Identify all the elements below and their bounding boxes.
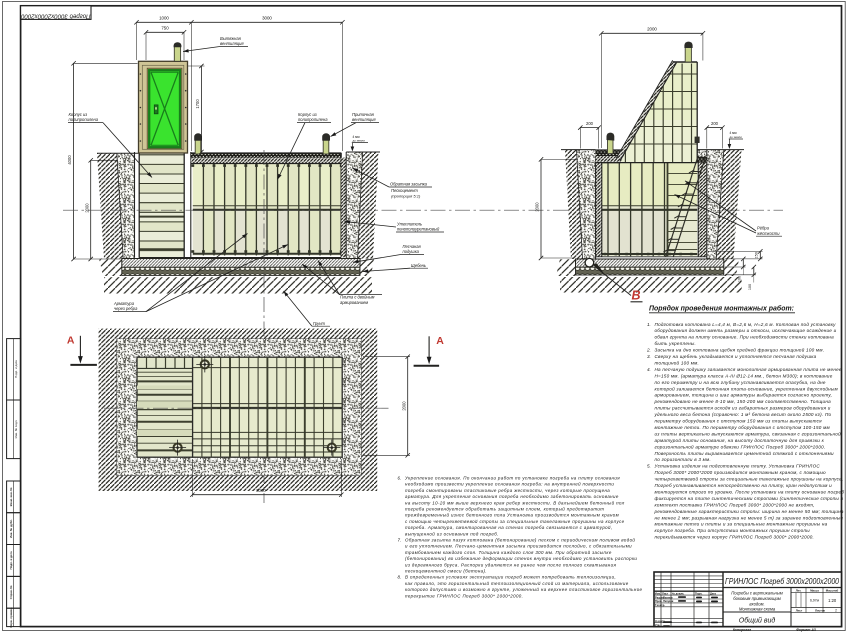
svg-text:Пескоцемент: Пескоцемент [391,188,418,193]
svg-text:быть укреплены.: быть укреплены. [655,341,697,346]
svg-text:толщиной 100 мм.: толщиной 100 мм. [655,360,700,366]
svg-text:полипропилена: полипропилена [69,117,99,122]
svg-text:армированием, толщина и шаг ар: армированием, толщина и шаг арматуры выб… [655,393,833,398]
svg-text:рекомендованные характеристики: рекомендованные характеристики стропы: ш… [654,509,844,514]
svg-text:ГРИНЛОС Погреб 3000х2000х2000: ГРИНЛОС Погреб 3000х2000х2000 [725,577,839,586]
svg-text:150: 150 [754,252,758,258]
svg-text:арматурой плиты основания, на: арматурой плиты основания, на высоту дос… [655,437,825,443]
svg-text:3000: 3000 [262,16,272,21]
svg-text:из плиты вертикально выпускают: из плиты вертикально выпускаются арматур… [655,430,842,436]
svg-text:периметру оборудования с отсту: периметру оборудования с отступом 150 мм… [655,419,823,424]
svg-text:(пропорция 5:1): (пропорция 5:1) [391,193,421,198]
svg-text:из деревянного бруса. Распорки: из деревянного бруса. Распорки удаляются… [405,562,616,567]
svg-text:и его уплотнением. Песчано-цем: и его уплотнением. Песчано-цементная зас… [405,543,632,549]
svg-text:100: 100 [748,284,752,290]
svg-text:Общий вид: Общий вид [739,617,776,625]
svg-text:полипропилена: полипропилена [298,117,328,122]
svg-text:по горизонтали в 3 мм.: по горизонтали в 3 мм. [655,457,711,462]
svg-text:2000: 2000 [401,401,406,411]
svg-text:2: 2 [835,609,837,613]
svg-text:которого допустимо и возможно: которого допустимо и возможно в грунте, … [405,586,643,592]
svg-text:Утеплитель: Утеплитель [397,221,422,226]
svg-text:5.: 5. [647,464,651,469]
svg-text:Листов: Листов [815,609,825,613]
svg-text:Сверху на щебень укладывается: Сверху на щебень укладывается и уплотняе… [655,354,817,359]
svg-text:которой заливается бетонная пл: которой заливается бетонная плита-основа… [655,385,839,391]
svg-text:пескоцементной смеси (бетона).: пескоцементной смеси (бетона). [405,568,487,574]
svg-text:Погребы с вертикальным: Погребы с вертикальным [731,591,783,596]
svg-text:Утв.: Утв. [655,623,660,627]
svg-text:4.: 4. [647,367,651,372]
svg-text:Т.контр.: Т.контр. [655,603,665,607]
svg-text:четырехветвевой стропы за спец: четырехветвевой стропы за специальные та… [655,476,844,482]
svg-text:Подп. и дата: Подп. и дата [14,360,18,378]
svg-text:№ докум.: № докум. [672,592,684,595]
svg-text:Копировал: Копировал [733,628,752,632]
svg-text:3000: 3000 [256,488,266,493]
svg-text:2000: 2000 [535,202,540,212]
svg-text:фиксируется на плите синтетиче: фиксируется на плите синтетическими стро… [655,496,844,501]
svg-text:Масса: Масса [810,588,819,592]
svg-text:Инв. № дубл.: Инв. № дубл. [9,519,13,538]
svg-text:комплект поставки ГРИНЛОС Погр: комплект поставки ГРИНЛОС Погреб 3000* 2… [655,502,815,507]
svg-text:Лист: Лист [796,609,803,613]
svg-text:Обратная засыпка пазух котлова: Обратная засыпка пазух котлована (бетони… [405,537,635,543]
svg-text:Взам. инв. №: Взам. инв. № [9,487,13,507]
svg-text:горизонтальной арматуре обвязк: горизонтальной арматуре обвязки ГРИНЛОС … [655,443,826,449]
svg-text:рекомендовано не менее 8-10 мм: рекомендовано не менее 8-10 мм, 150-200 … [654,399,832,404]
svg-text:Подп. и дата: Подп. и дата [9,551,13,569]
svg-text:не менее 2 мм; разрывная нагру: не менее 2 мм; разрывная нагрузка не мен… [655,515,844,520]
svg-text:армированием: армированием [340,300,368,305]
svg-text:Поверхность плиты выравниваетс: Поверхность плиты выравнивается цементно… [655,450,835,456]
svg-text:В определенных условиях эксплу: В определенных условиях эксплуатации пог… [405,575,616,580]
svg-text:Формат А3: Формат А3 [796,628,816,632]
svg-text:через ребра: через ребра [114,306,138,311]
svg-text:боковым примыкающим: боковым примыкающим [733,596,781,601]
svg-text:4000: 4000 [67,155,72,165]
svg-text:(бетонировании) во избежание д: (бетонировании) во избежание деформации … [405,556,637,561]
svg-text:погреба. Арматура, смонтирован: погреба. Арматура, смонтированная на сте… [405,524,613,530]
svg-text:Справ. №: Справ. № [9,585,13,600]
svg-text:оборудования должен иметь разм: оборудования должен иметь размеры и отко… [655,328,837,333]
svg-text:вентиляция: вентиляция [352,117,376,122]
svg-text:Дата: Дата [710,591,717,595]
svg-text:100: 100 [738,276,742,282]
svg-text:жёсткости: жёсткости [756,231,780,236]
svg-text:Погреб 3000* 2000*2000 произво: Погреб 3000* 2000*2000 производится монт… [655,470,827,475]
svg-text:1700: 1700 [195,99,200,109]
svg-text:Лит.: Лит. [796,588,802,592]
svg-text:преждевременный износ бетонног: преждевременный износ бетонного пола Уст… [405,512,619,518]
svg-text:подушка: подушка [403,249,420,254]
svg-text:до земли: до земли [730,135,743,139]
svg-text:A: A [67,335,75,347]
svg-text:1000: 1000 [159,16,169,21]
svg-text:750: 750 [161,26,169,31]
svg-text:Петров: Петров [663,599,674,603]
svg-text:пенополиуретановый: пенополиуретановый [397,227,440,232]
svg-text:Иванов: Иванов [663,595,673,599]
svg-text:7.: 7. [398,538,402,543]
svg-text:монтируется строго по уровню.: монтируется строго по уровню. После уста… [655,490,845,495]
svg-text:арматура. Для укрепления основ: арматура. Для укрепления основания погре… [405,494,619,499]
svg-text:2000: 2000 [84,203,89,213]
svg-text:Пров.: Пров. [655,599,663,603]
svg-text:Порядок проведения монтажных р: Порядок проведения монтажных работ: [649,303,794,312]
svg-text:перекрытие ГРИНЛОС Погреб 3000: перекрытие ГРИНЛОС Погреб 3000* 2000*200… [405,593,523,598]
svg-text:Обратная засыпка: Обратная засыпка [390,182,428,187]
svg-text:Инв. № подл.: Инв. № подл. [14,419,18,438]
svg-text:как правило, это горизонтальны: как правило, это горизонтальный теплоизо… [405,580,629,586]
svg-text:с помощью четырехветвевой стро: с помощью четырехветвевой стропы за спец… [405,518,625,524]
svg-text:Установка изделия на подготовл: Установка изделия на подготовленную плит… [655,464,821,469]
svg-text:обвал грунта на плиту основани: обвал грунта на плиту основание. При нео… [655,335,835,340]
svg-text:Укрепление основания. По оконч: Укрепление основания. По окончании работ… [405,476,620,481]
svg-text:2000: 2000 [647,27,657,32]
svg-text:необходимо произвести укреплен: необходимо произвести укрепление основан… [405,481,614,487]
svg-text:3.: 3. [647,354,651,359]
svg-text:6.: 6. [398,476,402,481]
svg-text:Погреб устанавливается непосре: Погреб устанавливается непосредственно н… [655,483,833,488]
svg-text:Перв. примен.: Перв. примен. [9,607,13,628]
svg-text:вентиляция: вентиляция [220,41,244,46]
svg-text:Монтажная схема: Монтажная схема [739,607,776,612]
svg-text:Погреб 3000х2000х2000: Погреб 3000х2000х2000 [20,13,90,20]
svg-text:Подп.: Подп. [695,591,703,595]
svg-text:2.: 2. [646,348,651,353]
svg-text:выпущенной из основания под по: выпущенной из основания под погреб. [405,530,499,536]
svg-text:плиты рассчитывается исходя из: плиты рассчитывается исходя из габаритны… [655,406,831,411]
svg-text:по его периметру и на всю глуб: по его периметру и на всю глубину устана… [655,380,826,385]
svg-text:A: A [436,335,444,347]
svg-text:200: 200 [586,121,594,126]
svg-text:200: 200 [711,121,719,126]
svg-text:Щебень: Щебень [411,263,426,268]
svg-text:Подготовка котлована L=4,4 м,: Подготовка котлована L=4,4 м, В=2,6 м, Н… [655,322,837,327]
svg-text:трамбованием каждого слоя. Тол: трамбованием каждого слоя. Толщина каждо… [405,549,612,555]
svg-text:до земли: до земли [353,139,366,143]
svg-text:Грунт: Грунт [313,321,325,326]
svg-text:перекидываются через корпус ГР: перекидываются через корпус ГРИНЛОС Погр… [655,535,815,540]
svg-text:На песчаную подушку заливается: На песчаную подушку заливается монолитна… [655,367,842,372]
svg-text:удельного веса бетона (справоч: удельного веса бетона (справочно: 1 м³ б… [654,412,832,417]
svg-text:Н=150 мм. (арматура класса А-: Н=150 мм. (арматура класса А-III Ø12-14 … [655,373,833,378]
svg-text:монтажные петли. По периметру: монтажные петли. По периметру оборудован… [655,425,831,430]
svg-text:на высоту 10-20 мм выше верхне: на высоту 10-20 мм выше верхнего края ре… [405,499,625,505]
svg-text:8.: 8. [398,575,402,580]
svg-text:Изм.: Изм. [655,591,661,595]
svg-text:погреба рекомендуется обработа: погреба рекомендуется обработать защитны… [405,506,604,512]
svg-text:Рёбра: Рёбра [757,226,770,231]
svg-text:погреба смонтированы пластиков: погреба смонтированы пластиковые ребра ж… [405,488,610,493]
svg-text:монтажные петли и плиты и за с: монтажные петли и плиты и за специальные… [655,522,828,527]
svg-text:B: B [631,289,640,303]
svg-text:Засыпка на дно котлована щебня: Засыпка на дно котлована щебня средней ф… [655,347,825,353]
svg-text:корпусе погреба. При отсутстви: корпусе погреба. При отсутствии монтажны… [655,528,811,533]
svg-text:Лист: Лист [662,591,669,595]
svg-text:6,97м: 6,97м [810,599,820,603]
svg-text:1:20: 1:20 [828,598,837,603]
svg-text:Масштаб: Масштаб [826,588,839,592]
svg-text:1.: 1. [647,322,651,327]
